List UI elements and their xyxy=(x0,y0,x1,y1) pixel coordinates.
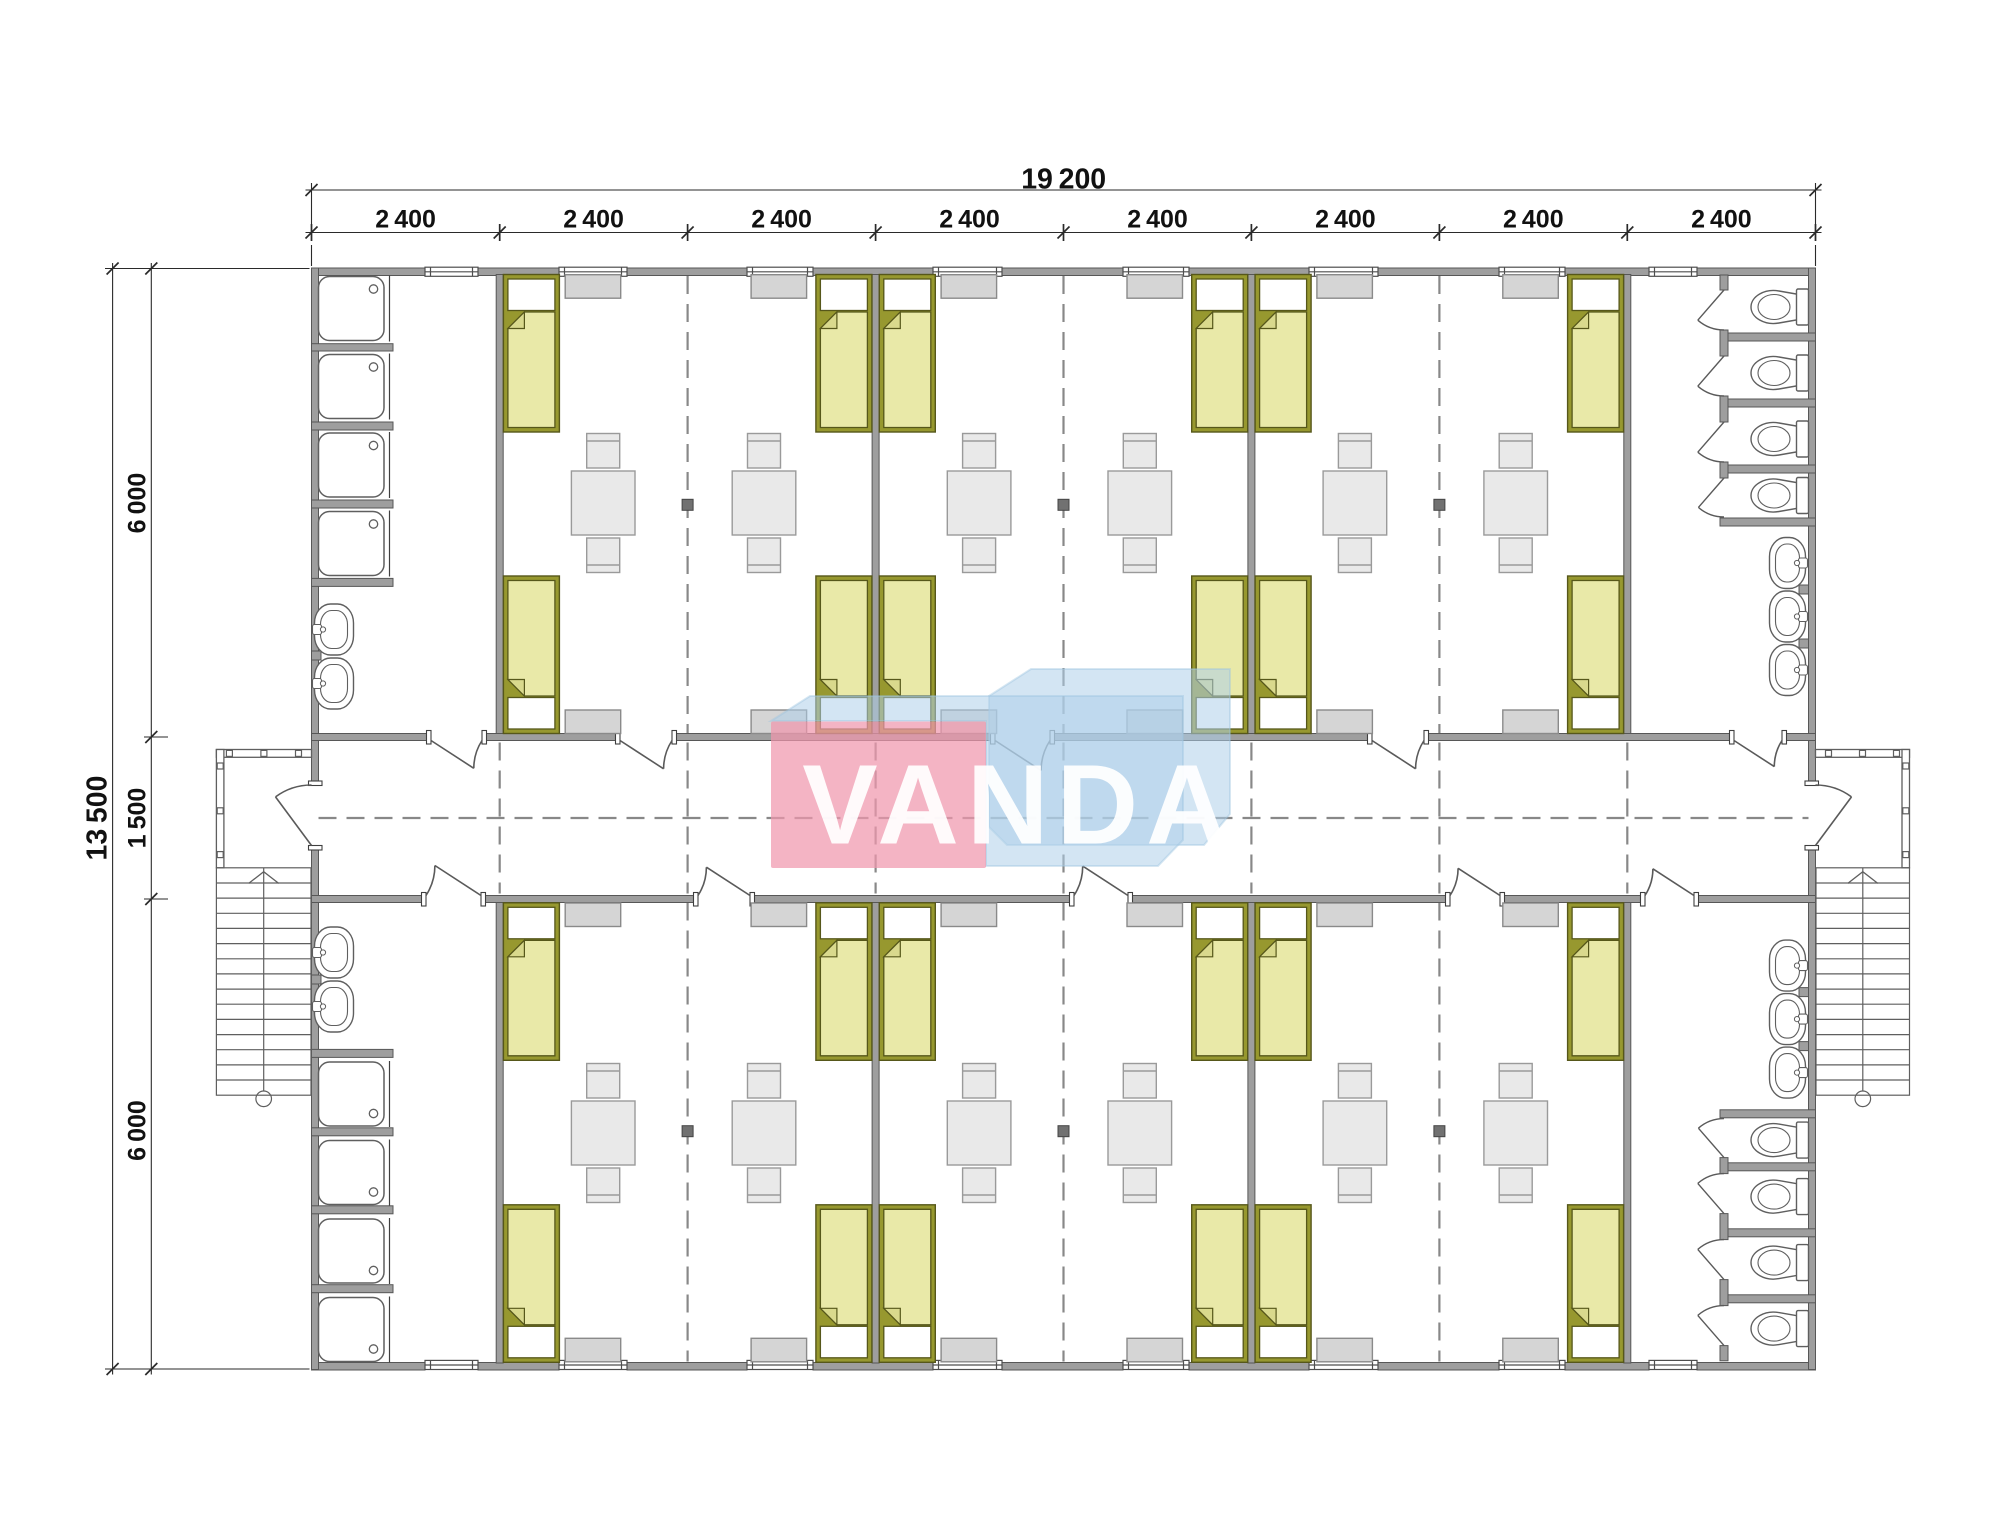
svg-text:2 400: 2 400 xyxy=(751,206,812,234)
svg-text:2 400: 2 400 xyxy=(1127,206,1188,234)
svg-text:1 500: 1 500 xyxy=(124,788,152,849)
svg-text:2 400: 2 400 xyxy=(563,206,624,234)
svg-text:2 400: 2 400 xyxy=(1503,206,1564,234)
svg-text:2 400: 2 400 xyxy=(1691,206,1752,234)
svg-text:2 400: 2 400 xyxy=(1315,206,1376,234)
svg-text:6 000: 6 000 xyxy=(124,473,152,534)
svg-text:6 000: 6 000 xyxy=(124,1100,152,1161)
svg-text:13 500: 13 500 xyxy=(82,776,114,861)
svg-text:19 200: 19 200 xyxy=(1021,164,1106,196)
svg-text:VANDA: VANDA xyxy=(802,742,1235,868)
svg-text:2 400: 2 400 xyxy=(375,206,436,234)
svg-text:2 400: 2 400 xyxy=(939,206,1000,234)
